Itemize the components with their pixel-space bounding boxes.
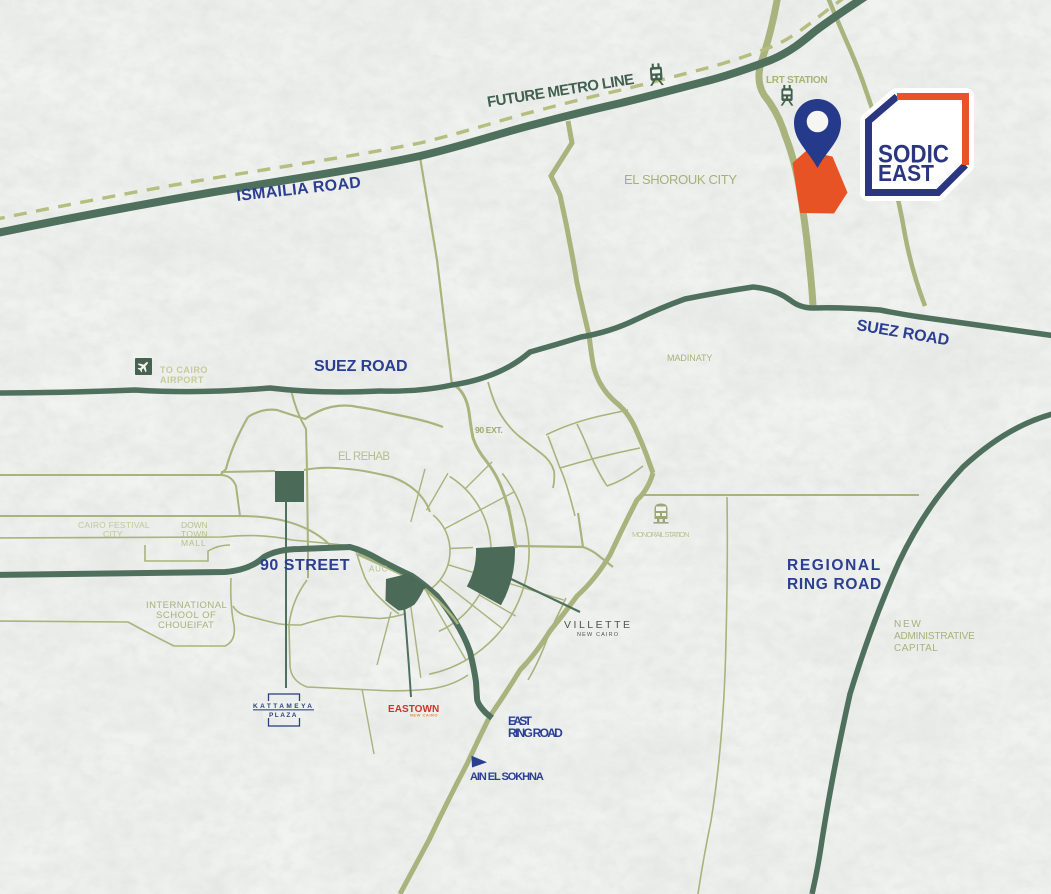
svg-text:REGIONAL: REGIONAL xyxy=(787,557,882,574)
svg-text:NEW CAIRO: NEW CAIRO xyxy=(577,632,620,638)
svg-text:LRT STATION: LRT STATION xyxy=(766,75,828,86)
svg-text:NEW: NEW xyxy=(894,619,921,630)
svg-text:EL REHAB: EL REHAB xyxy=(338,451,391,463)
svg-text:AUC: AUC xyxy=(369,565,388,574)
svg-text:CITY: CITY xyxy=(103,529,123,539)
svg-text:90 STREET: 90 STREET xyxy=(260,557,351,574)
svg-text:MALL: MALL xyxy=(181,538,206,548)
svg-text:ADMINISTRATIVE: ADMINISTRATIVE xyxy=(894,631,975,642)
svg-text:RING ROAD: RING ROAD xyxy=(787,576,883,593)
svg-text:MONORAIL STATION: MONORAIL STATION xyxy=(632,530,690,539)
svg-text:VILLETTE: VILLETTE xyxy=(564,619,634,631)
svg-text:KATTAMEYA: KATTAMEYA xyxy=(253,703,314,710)
svg-text:TO CAIRO: TO CAIRO xyxy=(160,365,208,375)
svg-text:EL SHOROUK CITY: EL SHOROUK CITY xyxy=(624,172,738,187)
svg-text:90 EXT.: 90 EXT. xyxy=(475,425,503,435)
svg-text:SUEZ ROAD: SUEZ ROAD xyxy=(314,358,409,375)
svg-text:PLAZA: PLAZA xyxy=(269,712,299,719)
svg-text:CAPITAL: CAPITAL xyxy=(894,643,938,654)
svg-text:AIN EL SOKHNA: AIN EL SOKHNA xyxy=(470,771,544,783)
svg-text:EAST: EAST xyxy=(878,160,934,186)
svg-text:NEW CAIRO: NEW CAIRO xyxy=(410,713,438,718)
svg-text:AIRPORT: AIRPORT xyxy=(160,375,204,385)
svg-text:RING ROAD: RING ROAD xyxy=(508,726,563,740)
svg-text:CHOUEIFAT: CHOUEIFAT xyxy=(158,620,214,631)
svg-text:MADINATY: MADINATY xyxy=(667,353,713,363)
